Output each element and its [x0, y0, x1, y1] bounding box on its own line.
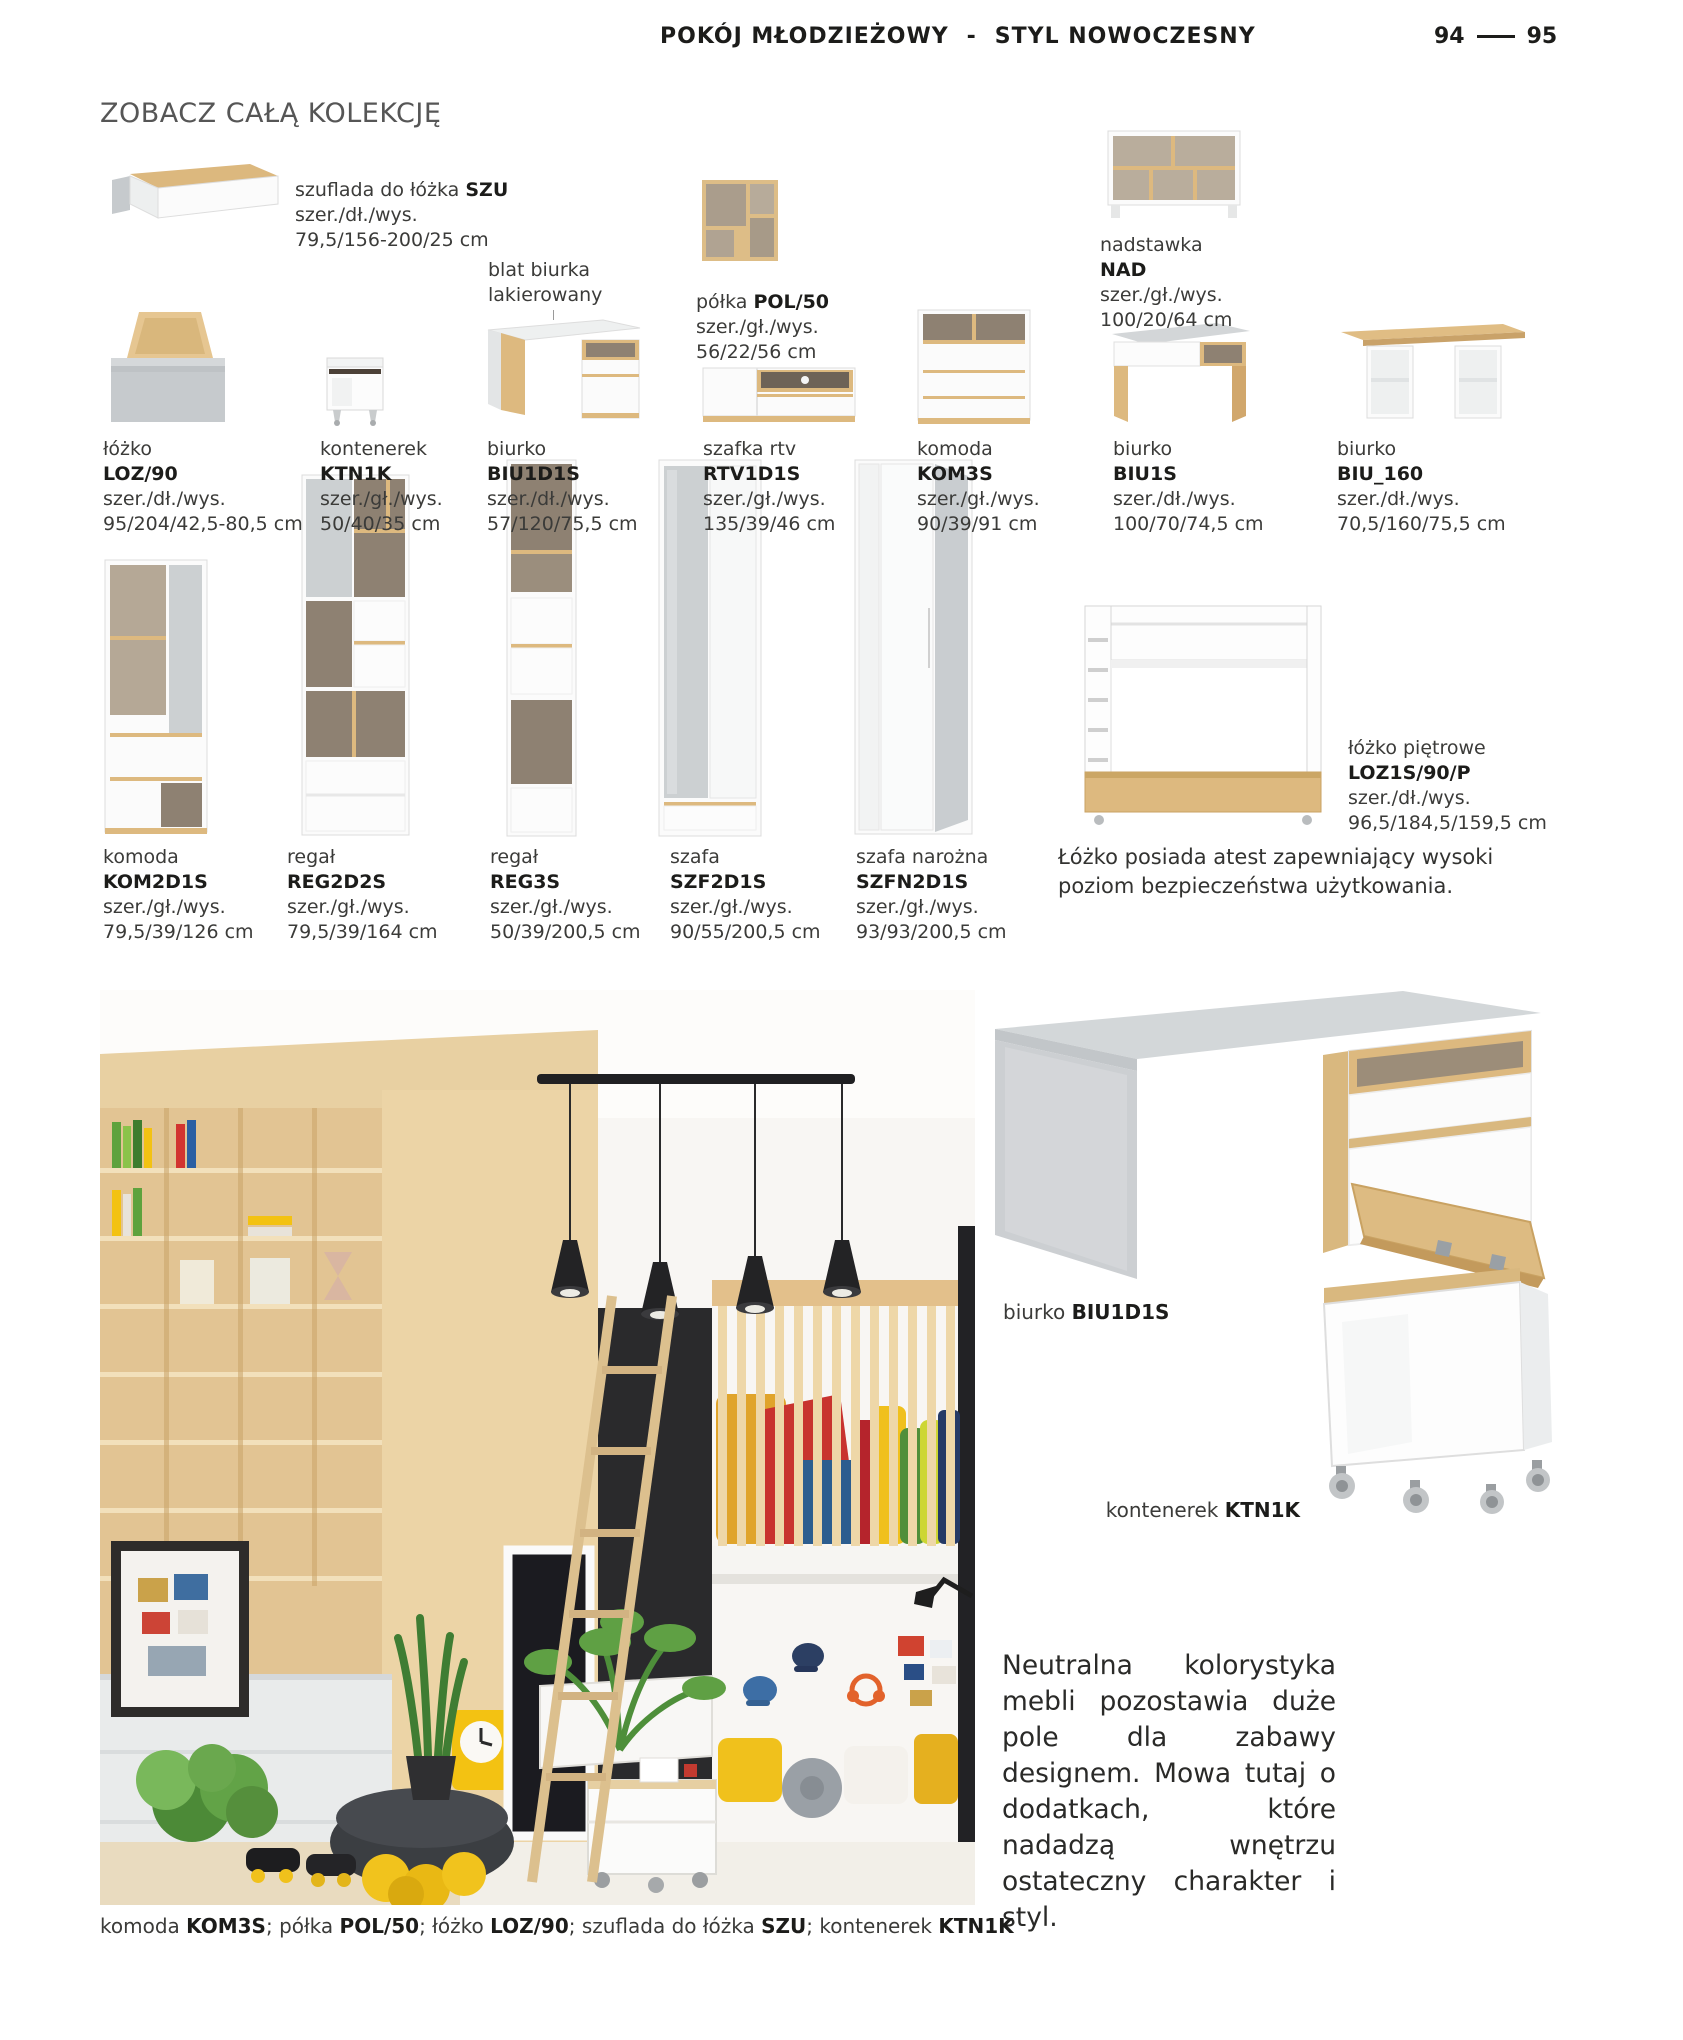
product-dims: 79,5/39/164 cm [287, 920, 438, 945]
product-code: BIU1D1S [487, 462, 638, 487]
header-title-left: POKÓJ MŁODZIEŻOWY [660, 24, 949, 49]
product-code: REG3S [490, 870, 641, 895]
product-image-biu1d1s [485, 318, 643, 425]
product-info-szfn2d1s: szafa narożna SZFN2D1S szer./gł./wys. 93… [856, 845, 1007, 945]
caption-code: LOZ/90 [490, 1914, 569, 1938]
product-dims: 135/39/46 cm [703, 512, 835, 537]
product-code: KTN1K [320, 462, 443, 487]
room-photo-caption: komoda KOM3S; półka POL/50; łóżko LOZ/90… [100, 1914, 1014, 1938]
product-image-nad [1105, 128, 1243, 220]
product-dims: 93/93/200,5 cm [856, 920, 1007, 945]
product-info-rtv1d1s: szafka rtv RTV1D1S szer./gł./wys. 135/39… [703, 437, 835, 537]
product-name: półka [696, 291, 747, 313]
product-dims: 50/40/35 cm [320, 512, 443, 537]
product-name: regał [287, 845, 438, 870]
product-name: szuflada do łóżka [295, 179, 459, 201]
product-image-biu1s [1110, 320, 1252, 425]
product-dims: 100/20/64 cm [1100, 308, 1232, 333]
caption-text: ; półka [266, 1914, 340, 1938]
caption-text: ; szuflada do łóżka [569, 1914, 761, 1938]
product-dims-label: szer./gł./wys. [917, 487, 1040, 512]
product-name: biurko [1113, 437, 1264, 462]
product-code: KOM2D1S [103, 870, 254, 895]
product-info-szu: szuflada do łóżka SZU szer./dł./wys. 79,… [295, 178, 508, 253]
product-code: SZU [465, 179, 508, 201]
caption-text: ; kontenerek [806, 1914, 938, 1938]
product-name: regał [490, 845, 641, 870]
product-name: biurko [1337, 437, 1506, 462]
header-title-right: STYL NOWOCZESNY [995, 24, 1256, 49]
product-dims-label: szer./gł./wys. [696, 315, 829, 340]
product-dims: 96,5/184,5/159,5 cm [1348, 811, 1547, 836]
product-dims-label: szer./gł./wys. [320, 487, 443, 512]
container-label-code: KTN1K [1225, 1498, 1300, 1522]
product-info-loz1s90p: łóżko piętrowe LOZ1S/90/P szer./dł./wys.… [1348, 736, 1547, 836]
product-image-rtv1d1s [701, 364, 857, 426]
product-info-biu1d1s: biurko BIU1D1S szer./dł./wys. 57/120/75,… [487, 437, 638, 537]
product-name: biurko [487, 437, 638, 462]
product-name: szafka rtv [703, 437, 835, 462]
annotation-line1: blat biurka [488, 258, 602, 283]
marketing-paragraph: Neutralna kolorystyka mebli pozostawia d… [1002, 1648, 1336, 1936]
product-name: szafa [670, 845, 821, 870]
product-name: komoda [103, 845, 254, 870]
note-line2: poziom bezpieczeństwa użytkowania. [1058, 872, 1493, 901]
collection-heading: ZOBACZ CAŁĄ KOLEKCJĘ [100, 98, 441, 129]
product-code: BIU_160 [1337, 462, 1506, 487]
product-dims: 79,5/39/126 cm [103, 920, 254, 945]
product-image-kom3s [916, 308, 1032, 426]
product-image-pol50 [700, 178, 780, 263]
desk-label-code: BIU1D1S [1072, 1300, 1170, 1324]
product-info-pol50: półka POL/50 szer./gł./wys. 56/22/56 cm [696, 290, 829, 365]
container-photo-label: kontenerek KTN1K [1000, 1498, 1300, 1522]
product-info-biu1s: biurko BIU1S szer./dł./wys. 100/70/74,5 … [1113, 437, 1264, 537]
product-dims: 56/22/56 cm [696, 340, 829, 365]
product-image-kom2d1s [103, 558, 209, 838]
product-image-loz1s90p [1075, 600, 1330, 832]
product-dims: 95/204/42,5-80,5 cm [103, 512, 303, 537]
product-dims-label: szer./dł./wys. [295, 203, 508, 228]
product-dims-label: szer./gł./wys. [103, 895, 254, 920]
annotation-line2: lakierowany [488, 283, 602, 308]
product-dims: 50/39/200,5 cm [490, 920, 641, 945]
product-info-biu160: biurko BIU_160 szer./dł./wys. 70,5/160/7… [1337, 437, 1506, 537]
page-numbers: 94 95 [1434, 24, 1557, 49]
bunk-bed-safety-note: Łóżko posiada atest zapewniający wysoki … [1058, 843, 1493, 901]
product-code: REG2D2S [287, 870, 438, 895]
product-dims-label: szer./dł./wys. [487, 487, 638, 512]
product-image-ktn1k [320, 352, 390, 426]
product-name: nadstawka [1100, 233, 1232, 258]
note-line1: Łóżko posiada atest zapewniający wysoki [1058, 843, 1493, 872]
product-info-nad: nadstawka NAD szer./gł./wys. 100/20/64 c… [1100, 233, 1232, 333]
product-name: łóżko [103, 437, 303, 462]
product-dims-label: szer./gł./wys. [490, 895, 641, 920]
product-dims: 70,5/160/75,5 cm [1337, 512, 1506, 537]
product-info-loz90: łóżko LOZ/90 szer./dł./wys. 95/204/42,5-… [103, 437, 303, 537]
product-dims: 90/39/91 cm [917, 512, 1040, 537]
product-info-kom3s: komoda KOM3S szer./gł./wys. 90/39/91 cm [917, 437, 1040, 537]
product-dims-label: szer./gł./wys. [670, 895, 821, 920]
product-code: SZFN2D1S [856, 870, 1007, 895]
page-number-right: 95 [1527, 24, 1558, 49]
product-dims: 79,5/156-200/25 cm [295, 228, 508, 253]
catalog-page: POKÓJ MŁODZIEŻOWY - STYL NOWOCZESNY 94 9… [0, 0, 1683, 2040]
product-info-szf2d1s: szafa SZF2D1S szer./gł./wys. 90/55/200,5… [670, 845, 821, 945]
product-code: RTV1D1S [703, 462, 835, 487]
product-dims: 100/70/74,5 cm [1113, 512, 1264, 537]
product-dims-label: szer./dł./wys. [1113, 487, 1264, 512]
product-code: SZF2D1S [670, 870, 821, 895]
product-code: NAD [1100, 258, 1232, 283]
product-name: łóżko piętrowe [1348, 736, 1547, 761]
product-code: KOM3S [917, 462, 1040, 487]
product-code: LOZ/90 [103, 462, 303, 487]
desk-top-annotation: blat biurka lakierowany [488, 258, 602, 308]
product-dims: 90/55/200,5 cm [670, 920, 821, 945]
container-product-photo [1290, 1180, 1560, 1525]
desk-photo-label: biurko BIU1D1S [1003, 1300, 1169, 1324]
caption-code: KOM3S [186, 1914, 266, 1938]
container-label-name: kontenerek [1106, 1498, 1219, 1522]
product-dims-label: szer./dł./wys. [103, 487, 303, 512]
product-name: szafa narożna [856, 845, 1007, 870]
product-info-ktn1k: kontenerek KTN1K szer./gł./wys. 50/40/35… [320, 437, 443, 537]
product-image-loz90 [103, 312, 233, 426]
product-dims: 57/120/75,5 cm [487, 512, 638, 537]
page-number-dash [1477, 35, 1515, 38]
caption-code: KTN1K [938, 1914, 1013, 1938]
room-photo [100, 990, 975, 1905]
page-number-left: 94 [1434, 24, 1465, 49]
desk-label-name: biurko [1003, 1300, 1065, 1324]
product-dims-label: szer./gł./wys. [1100, 283, 1232, 308]
product-image-szu [100, 160, 285, 230]
annotation-pointer-line [553, 310, 554, 320]
product-dims-label: szer./dł./wys. [1337, 487, 1506, 512]
product-info-reg3s: regał REG3S szer./gł./wys. 50/39/200,5 c… [490, 845, 641, 945]
caption-code: SZU [761, 1914, 806, 1938]
caption-text: komoda [100, 1914, 186, 1938]
product-image-biu160 [1335, 320, 1530, 423]
product-code: POL/50 [753, 291, 829, 313]
product-info-kom2d1s: komoda KOM2D1S szer./gł./wys. 79,5/39/12… [103, 845, 254, 945]
page-header-title: POKÓJ MŁODZIEŻOWY - STYL NOWOCZESNY [660, 24, 1256, 49]
product-name: komoda [917, 437, 1040, 462]
product-code: BIU1S [1113, 462, 1264, 487]
product-title: szuflada do łóżka SZU [295, 178, 508, 203]
product-dims-label: szer./gł./wys. [287, 895, 438, 920]
product-dims-label: szer./dł./wys. [1348, 786, 1547, 811]
caption-code: POL/50 [340, 1914, 420, 1938]
header-separator: - [967, 24, 977, 49]
product-name: kontenerek [320, 437, 443, 462]
product-title: półka POL/50 [696, 290, 829, 315]
product-dims-label: szer./gł./wys. [856, 895, 1007, 920]
product-dims-label: szer./gł./wys. [703, 487, 835, 512]
caption-text: ; łóżko [419, 1914, 490, 1938]
product-info-reg2d2s: regał REG2D2S szer./gł./wys. 79,5/39/164… [287, 845, 438, 945]
product-code: LOZ1S/90/P [1348, 761, 1547, 786]
